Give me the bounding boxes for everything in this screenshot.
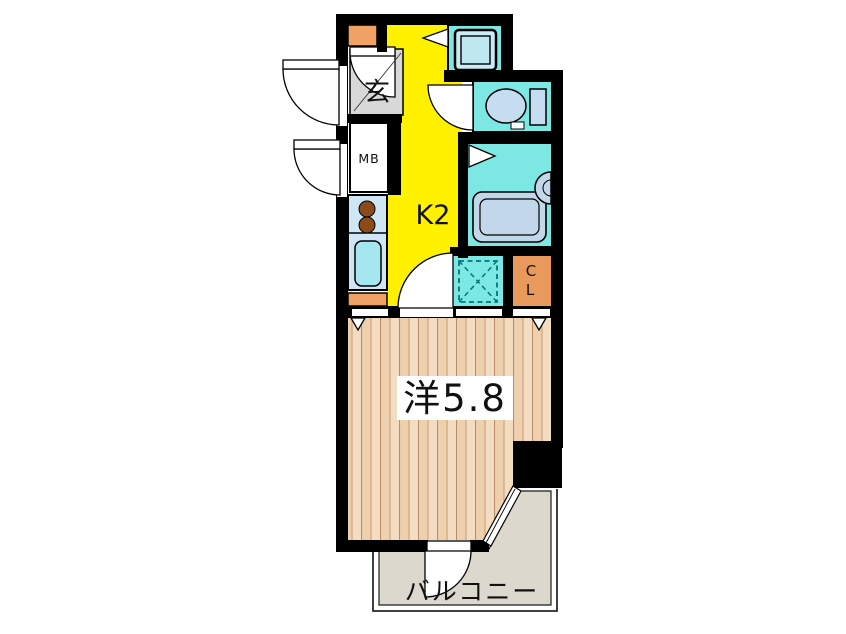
shoe-cabinet — [348, 25, 377, 46]
wall-entrance-top — [377, 25, 387, 52]
pillar — [513, 441, 562, 488]
mb-door-swing — [294, 149, 340, 195]
stove-burners-icon — [359, 201, 375, 217]
wall-upper-right — [501, 14, 513, 74]
toilet-icon-step — [511, 122, 524, 129]
wall-entrance-mb — [345, 114, 402, 123]
wall-mb-right — [388, 118, 401, 195]
floorplan: 玄 MB K2 CL 洋5.8 バルコニー — [0, 0, 846, 634]
wall-bath-left — [458, 132, 468, 258]
wall-toilet-top — [444, 70, 563, 82]
window-right — [513, 309, 550, 316]
stove-burners-icon — [359, 217, 375, 233]
wall-toilet-bath — [462, 132, 552, 143]
kitchen-label: K2 — [416, 200, 451, 231]
mb-door-leaf — [294, 140, 340, 149]
window-left — [352, 309, 388, 316]
toilet-icon — [486, 89, 526, 123]
meter-box-label: MB — [358, 151, 379, 166]
wall-right — [551, 70, 563, 448]
toilet-icon-tank — [530, 89, 546, 125]
entrance-label: 玄 — [364, 78, 390, 108]
western-room-label: 洋5.8 — [403, 377, 507, 420]
counter-end-cabinet — [348, 293, 387, 306]
entrance-door-leaf — [350, 47, 395, 56]
window-center — [456, 309, 502, 316]
closet-letter-l: L — [526, 281, 535, 299]
closet-letter-c: C — [526, 262, 536, 280]
wall-bottom-left — [336, 540, 428, 552]
front-door-leaf — [283, 60, 339, 69]
wall-top — [336, 14, 513, 25]
front-door-swing — [283, 69, 339, 125]
wall-above-washer-space — [450, 247, 563, 256]
balcony-label: バルコニー — [405, 577, 540, 606]
wall-washer-closet — [503, 255, 512, 308]
washing-machine-icon-inner — [461, 36, 490, 64]
floorplan-drawing: 玄 MB K2 CL 洋5.8 バルコニー — [0, 0, 846, 634]
kitchen-sink-icon — [355, 241, 381, 286]
